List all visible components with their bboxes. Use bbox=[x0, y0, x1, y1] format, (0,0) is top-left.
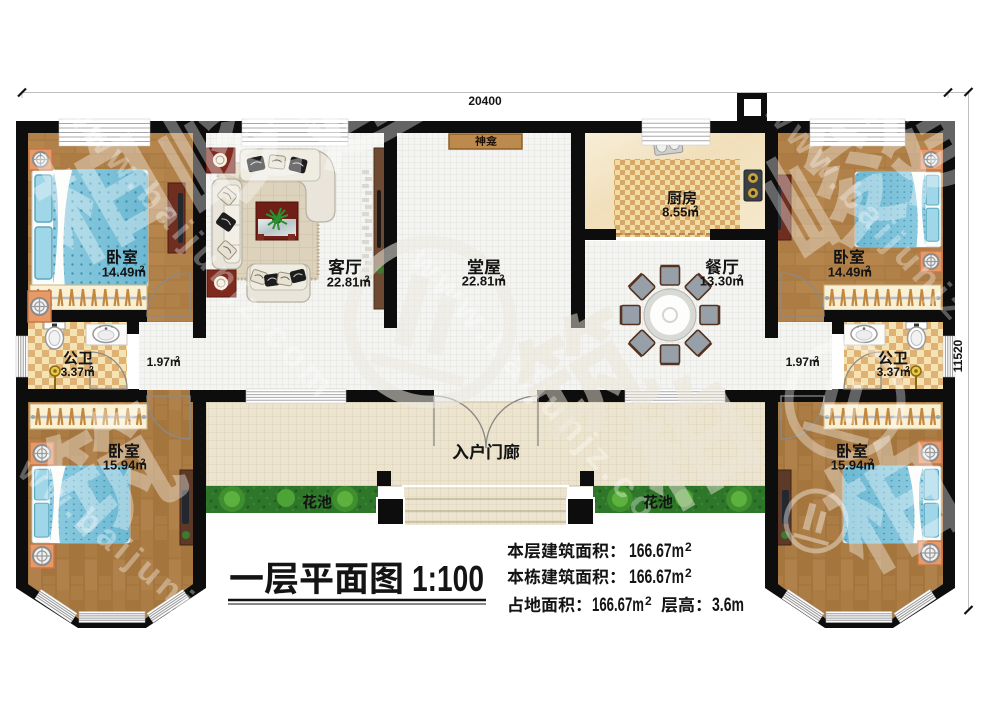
svg-text:11520: 11520 bbox=[951, 339, 965, 372]
svg-text:2: 2 bbox=[905, 365, 910, 374]
svg-text:166.67m: 166.67m bbox=[592, 595, 644, 616]
svg-text:2: 2 bbox=[175, 355, 180, 364]
svg-text:2: 2 bbox=[693, 204, 698, 214]
svg-text:2: 2 bbox=[89, 365, 94, 374]
svg-text:2: 2 bbox=[738, 273, 743, 283]
svg-text:3.6m: 3.6m bbox=[712, 595, 744, 616]
svg-text:20400: 20400 bbox=[468, 94, 502, 108]
svg-text:1:100: 1:100 bbox=[412, 558, 484, 599]
svg-text:2: 2 bbox=[500, 273, 505, 283]
svg-text:2: 2 bbox=[685, 566, 692, 580]
svg-text:166.67m: 166.67m bbox=[629, 567, 684, 588]
svg-text:166.67m: 166.67m bbox=[629, 541, 684, 562]
svg-text:2: 2 bbox=[140, 264, 145, 274]
svg-text:2: 2 bbox=[814, 355, 819, 364]
svg-text:2: 2 bbox=[645, 594, 652, 608]
svg-text:2: 2 bbox=[869, 457, 874, 467]
svg-text:2: 2 bbox=[141, 457, 146, 467]
svg-text:2: 2 bbox=[365, 274, 370, 284]
svg-text:2: 2 bbox=[685, 540, 692, 554]
svg-text:2: 2 bbox=[866, 264, 871, 274]
